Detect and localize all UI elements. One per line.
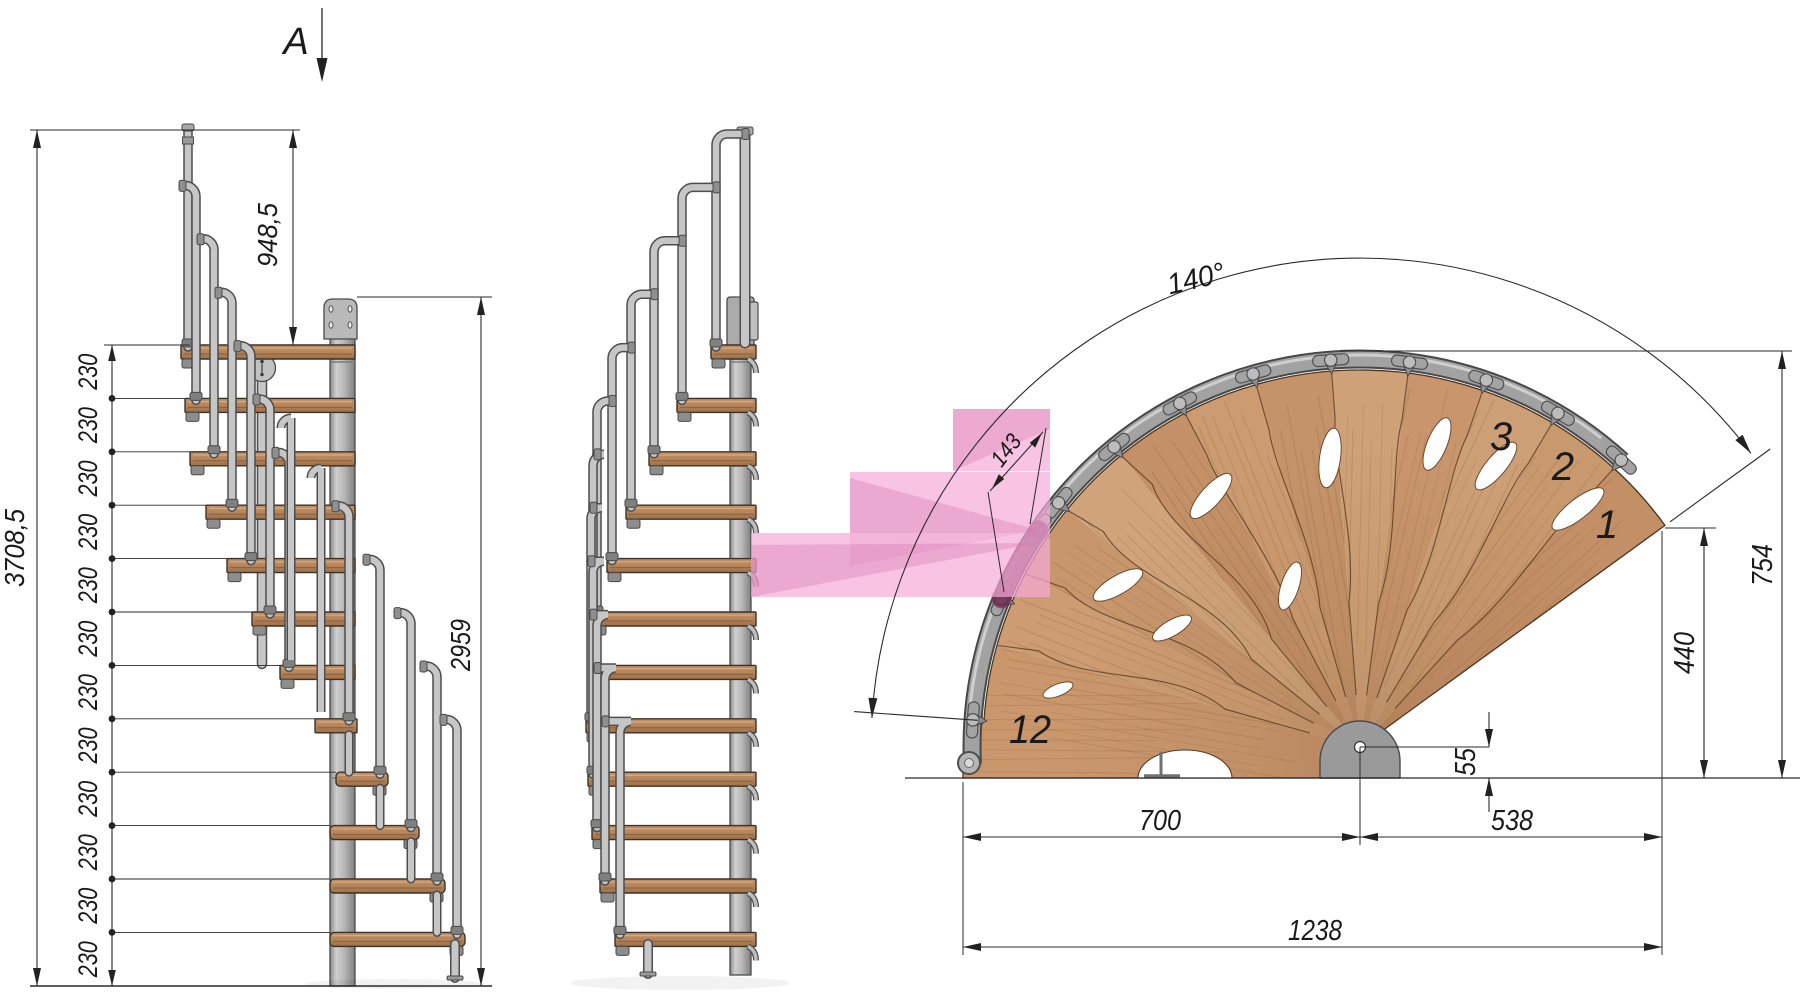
svg-text:440: 440	[1669, 632, 1701, 674]
svg-text:230: 230	[73, 674, 103, 711]
svg-text:230: 230	[73, 834, 103, 871]
svg-text:55: 55	[1450, 747, 1482, 776]
svg-text:230: 230	[73, 567, 103, 604]
svg-text:2959: 2959	[445, 619, 476, 672]
svg-text:230: 230	[73, 728, 103, 765]
svg-text:3: 3	[1490, 415, 1512, 459]
svg-text:1238: 1238	[1288, 915, 1342, 947]
svg-text:538: 538	[1491, 805, 1533, 837]
svg-text:230: 230	[73, 407, 103, 444]
svg-text:230: 230	[73, 888, 103, 925]
svg-text:A: A	[281, 21, 308, 63]
svg-text:948,5: 948,5	[252, 203, 283, 267]
svg-text:2: 2	[1551, 445, 1574, 489]
svg-text:700: 700	[1139, 805, 1181, 837]
svg-text:12: 12	[1009, 708, 1051, 752]
svg-text:230: 230	[73, 354, 103, 391]
svg-text:754: 754	[1747, 544, 1779, 586]
svg-text:230: 230	[73, 621, 103, 658]
svg-text:230: 230	[73, 461, 103, 498]
svg-text:230: 230	[73, 941, 103, 978]
svg-text:230: 230	[73, 781, 103, 818]
svg-text:3708,5: 3708,5	[0, 509, 30, 587]
svg-text:230: 230	[73, 514, 103, 551]
svg-text:1: 1	[1596, 503, 1618, 547]
